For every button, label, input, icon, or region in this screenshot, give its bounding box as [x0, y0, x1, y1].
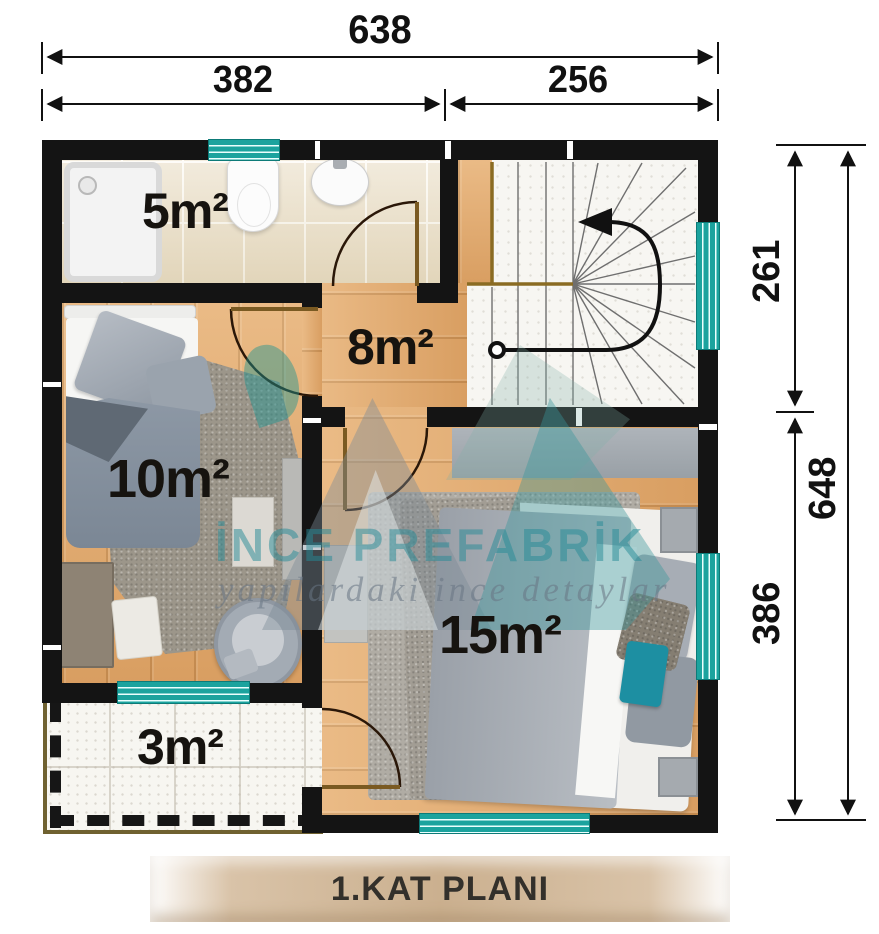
window-bathroom-top: [208, 139, 280, 161]
floor-plan-canvas: İNCE PREFABRİK yapılardaki ince detaylar…: [0, 0, 879, 934]
dimension-label-total-height: 648: [804, 438, 842, 538]
wall-joint: [699, 424, 717, 430]
wall-segment: [42, 140, 718, 160]
dimension-label-total-width: 638: [333, 10, 428, 50]
balcony-railing-dashed-bottom: [52, 804, 320, 826]
room-area-label-balcony: 3m²: [120, 722, 240, 772]
dimension-label-height-lower: 386: [748, 563, 786, 663]
shower-drain: [78, 176, 97, 195]
wall-joint: [315, 141, 320, 159]
wall-segment: [322, 407, 345, 427]
chair: [111, 596, 163, 660]
room-area-label-bathroom: 5m²: [125, 186, 245, 236]
plan-title: 1.KAT PLANI: [331, 870, 549, 909]
dimension-label-height-upper: 261: [748, 221, 786, 321]
wall-segment: [440, 160, 458, 283]
balcony-frame-line: [43, 697, 47, 834]
accent-pillow-teal: [619, 640, 669, 707]
nightstand: [660, 507, 698, 553]
window-stairs-right: [696, 222, 720, 350]
wall-segment: [42, 283, 317, 303]
wall-segment: [427, 407, 442, 427]
wall-joint: [303, 418, 321, 423]
wall-joint: [43, 382, 61, 387]
dresser: [58, 562, 114, 668]
wall-joint: [43, 645, 61, 650]
wall-segment: [302, 283, 322, 308]
window-bedroom-large-bottom: [419, 813, 590, 834]
single-bed-headboard: [64, 305, 196, 319]
wall-segment: [417, 283, 458, 303]
dimension-label-width-right: 256: [531, 61, 626, 99]
window-bedroom-large-right: [696, 553, 720, 680]
door-threshold: [302, 308, 322, 396]
wall-segment: [42, 683, 117, 703]
wall-segment: [302, 683, 322, 708]
window-balcony: [117, 681, 250, 704]
wall-segment: [302, 787, 322, 833]
room-area-label-hallway: 8m²: [330, 322, 450, 372]
dimension-label-width-left: 382: [196, 61, 291, 99]
watermark-brand-text: İNCE PREFABRİK: [215, 518, 645, 572]
nightstand: [658, 757, 698, 797]
plan-title-band: 1.KAT PLANI: [150, 856, 730, 922]
balcony-frame-line: [43, 830, 323, 834]
floor-stairwell-void: [458, 160, 492, 284]
floor-stairs-upper: [492, 160, 698, 284]
wall-joint: [567, 141, 573, 159]
wall-joint: [445, 141, 451, 159]
room-area-label-bedroom-large: 15m²: [425, 608, 575, 662]
wall-segment: [42, 140, 62, 700]
room-area-label-bedroom-small: 10m²: [98, 452, 238, 506]
watermark-tagline-text: yapılardaki ince detaylar: [218, 570, 671, 610]
